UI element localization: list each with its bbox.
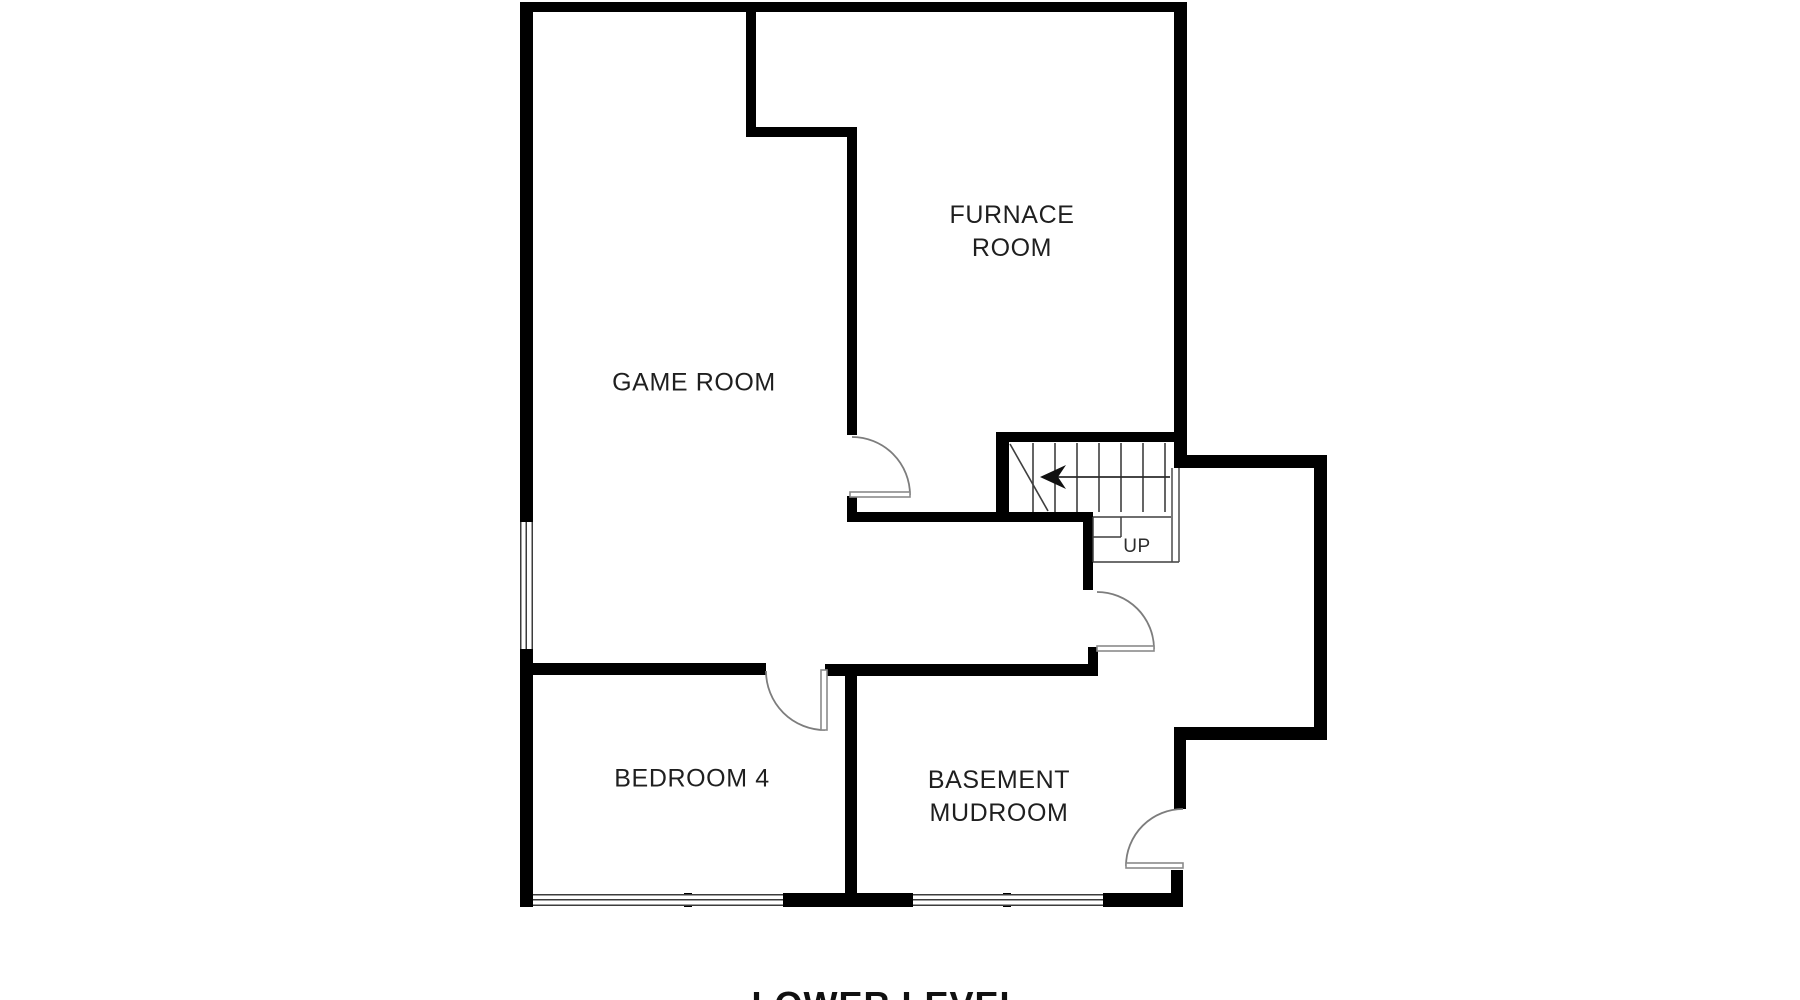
room-label-line: FURNACE [949, 199, 1074, 232]
room-label-bedroom-4: BEDROOM 4 [614, 763, 769, 796]
door-arc-game-room [852, 437, 910, 495]
room-label-basement-mudroom: BASEMENT MUDROOM [928, 764, 1070, 830]
door-arc-mudroom-exterior [1126, 809, 1183, 866]
floor-plan: GAME ROOM FURNACE ROOM BEDROOM 4 BASEMEN… [0, 0, 1800, 1000]
room-label-line: ROOM [949, 232, 1074, 265]
room-label-furnace-room: FURNACE ROOM [949, 199, 1074, 265]
door-leaf-mudroom-exterior [1126, 863, 1183, 868]
plan-title: LOWER LEVEL [752, 984, 1023, 1000]
up-label: UP [1123, 536, 1150, 558]
door-leaf-game-room [850, 492, 910, 497]
door-arc-bedroom4 [766, 671, 825, 730]
room-label-line: MUDROOM [928, 797, 1070, 830]
doors-and-stairs-layer [0, 0, 1800, 1000]
room-label-game-room: GAME ROOM [612, 367, 776, 400]
room-label-line: BASEMENT [928, 764, 1070, 797]
door-leaf-mudroom-corridor [1097, 646, 1154, 651]
door-arc-mudroom-corridor [1097, 592, 1154, 649]
door-leaf-bedroom4 [821, 670, 827, 730]
stair-railing [1172, 468, 1179, 562]
